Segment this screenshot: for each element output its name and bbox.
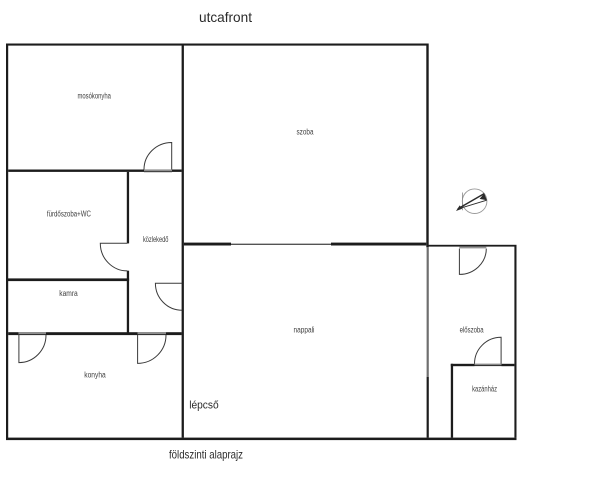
svg-text:konyha: konyha <box>84 370 106 379</box>
svg-text:mosókonyha: mosókonyha <box>77 92 111 101</box>
svg-text:kazánház: kazánház <box>472 384 497 393</box>
svg-text:fürdőszoba+WC: fürdőszoba+WC <box>47 210 91 219</box>
svg-text:közlekedő: közlekedő <box>143 235 169 244</box>
svg-text:lépcső: lépcső <box>189 399 219 411</box>
svg-text:előszoba: előszoba <box>460 325 484 334</box>
svg-text:kamra: kamra <box>59 289 78 298</box>
svg-text:földszinti alaprajz: földszinti alaprajz <box>169 447 243 461</box>
svg-text:szoba: szoba <box>297 127 314 136</box>
svg-text:nappali: nappali <box>294 326 315 335</box>
svg-text:utcafront: utcafront <box>199 9 252 25</box>
